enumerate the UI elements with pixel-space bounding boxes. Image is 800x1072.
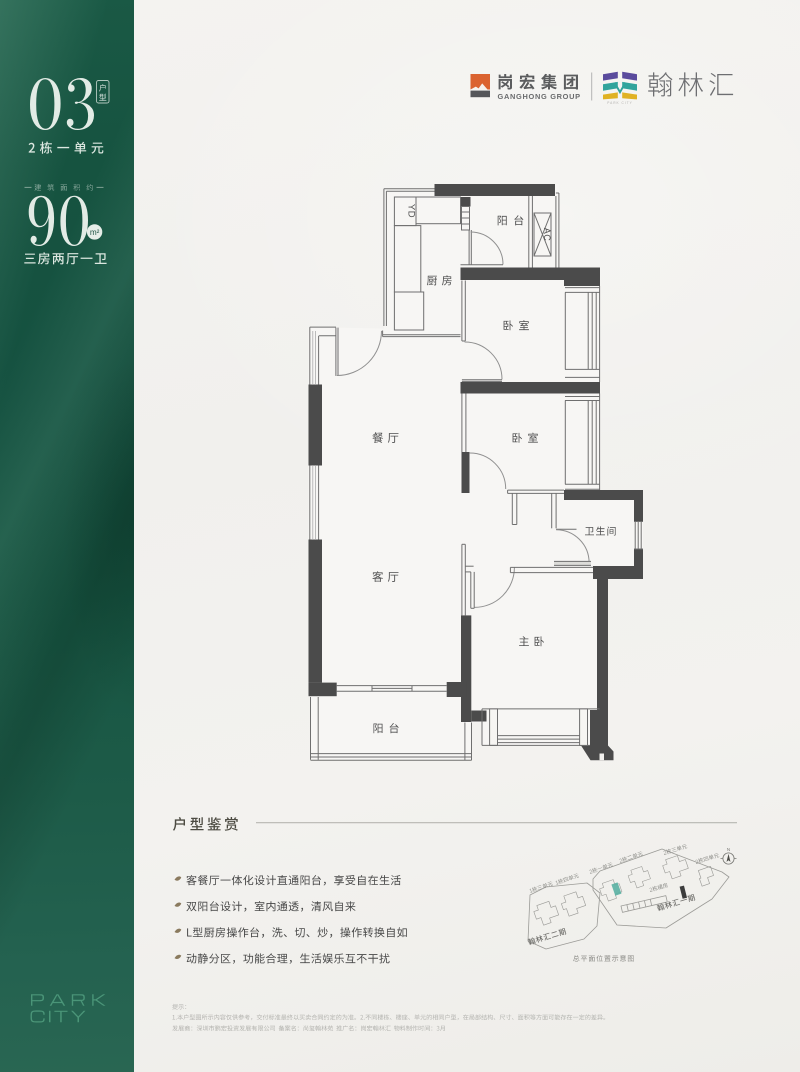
svg-text:YD: YD [406,204,417,218]
svg-text:m²: m² [90,228,100,237]
svg-text:AC: AC [542,228,552,242]
svg-text:PARK CITY: PARK CITY [607,101,633,105]
svg-text:N: N [727,847,730,852]
svg-text:GANGHONG GROUP: GANGHONG GROUP [498,92,581,101]
